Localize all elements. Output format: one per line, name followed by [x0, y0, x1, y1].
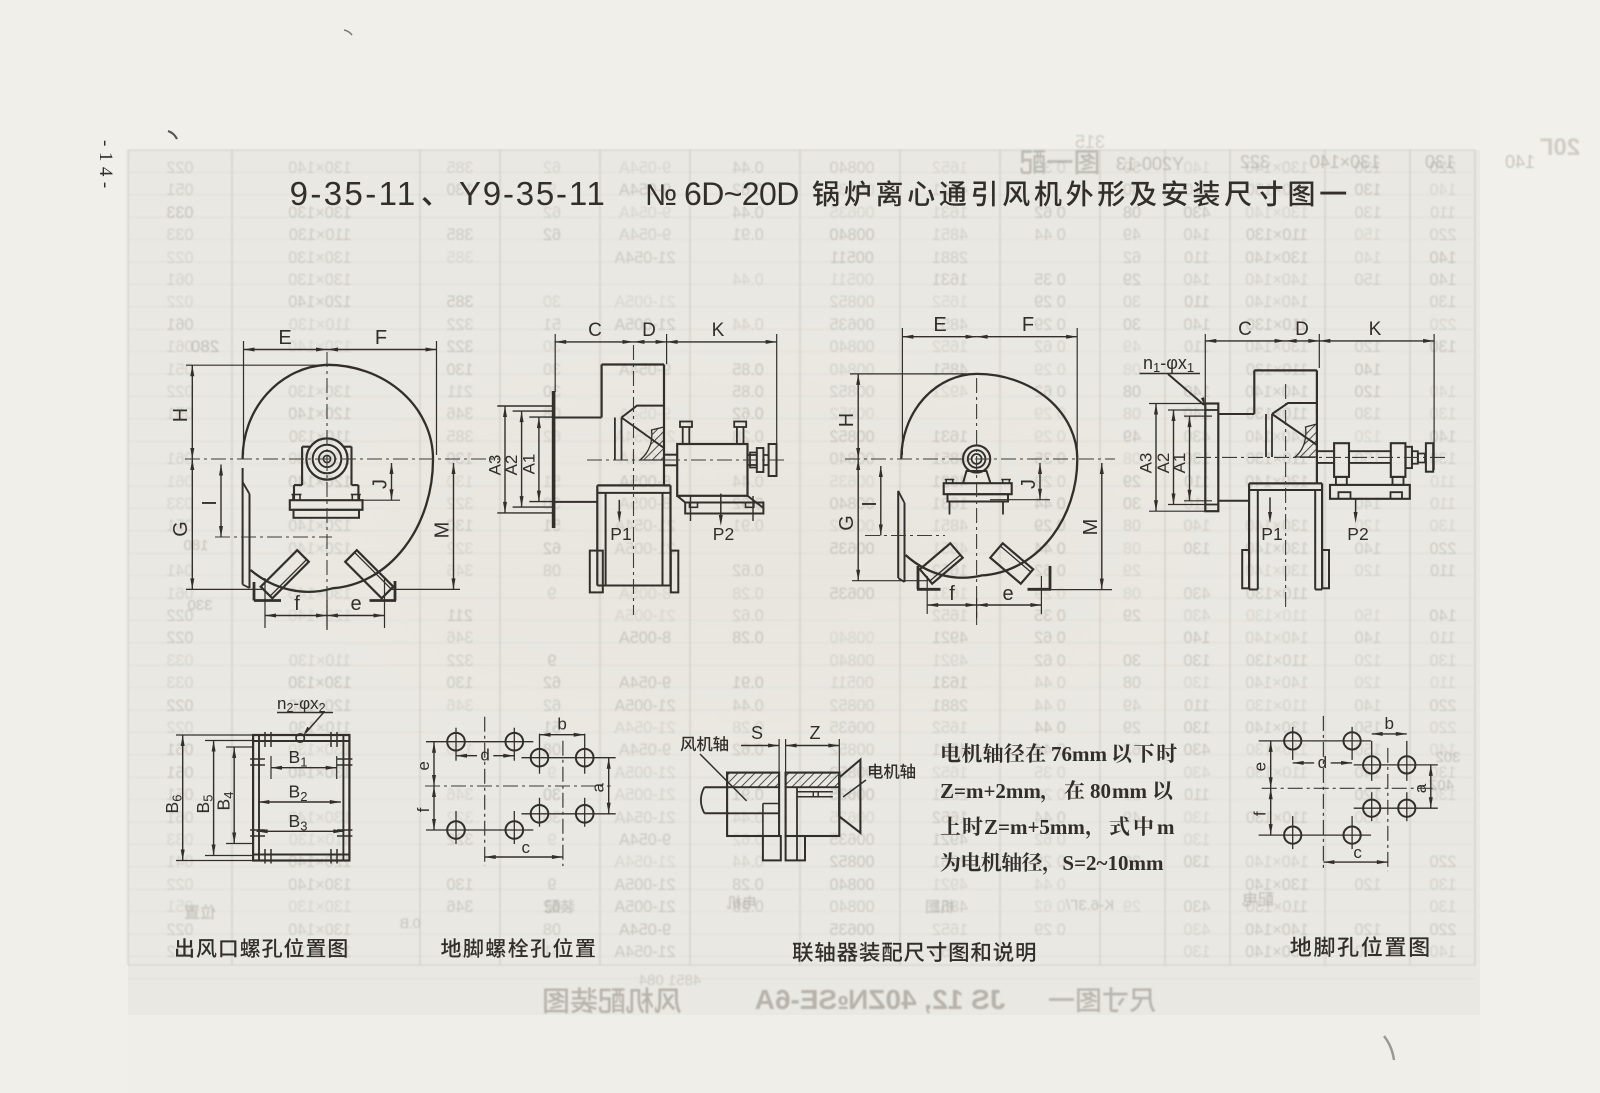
svg-text:130: 130: [1429, 876, 1456, 894]
svg-text:0 62: 0 62: [1034, 652, 1066, 670]
svg-text:110: 110: [1430, 473, 1456, 491]
svg-text:0 29: 0 29: [1034, 517, 1066, 535]
svg-text:140: 140: [1429, 607, 1456, 625]
svg-text:B2: B2: [289, 782, 308, 805]
svg-text:K: K: [1369, 319, 1382, 340]
svg-text:4921: 4921: [932, 652, 968, 670]
svg-text:f: f: [1251, 811, 1270, 816]
svg-text:S=2~10mm: S=2~10mm: [1062, 851, 1164, 875]
svg-text:e: e: [414, 761, 433, 770]
svg-text:120×140: 120×140: [288, 405, 351, 423]
svg-text:140: 140: [1183, 517, 1210, 535]
svg-text:S: S: [751, 723, 763, 743]
svg-text:110: 110: [1184, 697, 1210, 715]
svg-text:08: 08: [1123, 405, 1141, 423]
svg-text:00840: 00840: [829, 226, 874, 244]
svg-text:130: 130: [1183, 853, 1210, 871]
svg-text:140×140: 140×140: [1245, 674, 1308, 692]
svg-text:08: 08: [1123, 585, 1141, 603]
svg-text:30: 30: [543, 809, 561, 827]
svg-text:00635: 00635: [829, 585, 874, 603]
svg-text:033: 033: [166, 674, 193, 692]
svg-text:110: 110: [1184, 293, 1210, 311]
svg-text:E: E: [933, 314, 946, 336]
svg-text:430: 430: [1183, 764, 1210, 782]
svg-text:0 62: 0 62: [1034, 629, 1066, 647]
svg-text:I: I: [859, 501, 881, 507]
svg-text:08: 08: [543, 562, 561, 580]
svg-text:220: 220: [1429, 540, 1456, 558]
svg-text:120×140: 120×140: [288, 517, 351, 535]
svg-text:022: 022: [166, 159, 193, 177]
svg-text:130: 130: [1354, 204, 1381, 222]
svg-text:220: 220: [1429, 853, 1456, 871]
svg-text:0.44: 0.44: [732, 853, 764, 871]
svg-text:033: 033: [166, 204, 193, 222]
svg-text:022: 022: [166, 697, 193, 715]
svg-text:00635: 00635: [829, 473, 874, 491]
svg-text:P2: P2: [1347, 524, 1368, 544]
svg-text:29: 29: [1123, 473, 1141, 491]
svg-text:1652: 1652: [932, 719, 968, 737]
svg-text:4921: 4921: [932, 876, 968, 894]
svg-text:1652: 1652: [932, 607, 968, 625]
svg-text:b: b: [557, 715, 566, 734]
svg-text:08: 08: [1123, 361, 1141, 379]
svg-text:J: J: [1018, 479, 1040, 489]
svg-text:9: 9: [547, 652, 556, 670]
svg-text:1652: 1652: [932, 293, 968, 311]
svg-text:B4: B4: [214, 792, 237, 811]
svg-text:49: 49: [1123, 338, 1141, 356]
svg-text:150: 150: [1354, 226, 1381, 244]
svg-text:322: 322: [1240, 152, 1270, 172]
svg-text:211: 211: [447, 607, 473, 625]
svg-text:62: 62: [543, 697, 561, 715]
svg-text:120×140: 120×140: [288, 540, 351, 558]
svg-text:220: 220: [1429, 316, 1456, 334]
svg-text:9-054A: 9-054A: [619, 226, 671, 244]
svg-text:40Z: 40Z: [1428, 777, 1454, 794]
svg-text:00635: 00635: [829, 921, 874, 939]
svg-text:430: 430: [1183, 607, 1210, 625]
svg-text:00635: 00635: [829, 316, 874, 334]
svg-text:a: a: [1411, 783, 1430, 793]
svg-text:B6: B6: [162, 795, 185, 814]
svg-text:80: 80: [1090, 779, 1111, 803]
svg-text:140: 140: [1354, 249, 1381, 267]
svg-text:130: 130: [1183, 831, 1210, 849]
svg-text:00840: 00840: [829, 338, 874, 356]
svg-text:022: 022: [166, 629, 193, 647]
svg-text:0 62: 0 62: [1034, 338, 1066, 356]
svg-text:0 62: 0 62: [1034, 204, 1066, 222]
svg-text:322: 322: [446, 652, 473, 670]
svg-text:110×130: 110×130: [1246, 652, 1308, 670]
svg-text:21-005A: 21-005A: [614, 876, 675, 894]
svg-text:00635: 00635: [829, 204, 874, 222]
svg-text:30: 30: [1123, 495, 1141, 513]
svg-text:00852: 00852: [829, 853, 874, 871]
svg-text:140: 140: [1354, 697, 1381, 715]
svg-text:P2: P2: [713, 524, 734, 544]
svg-text:00511: 00511: [830, 249, 874, 267]
svg-text:051: 051: [166, 181, 193, 199]
svg-text:9: 9: [547, 585, 556, 603]
svg-text:9: 9: [547, 831, 556, 849]
svg-text:F: F: [375, 327, 387, 349]
svg-text:110: 110: [1430, 204, 1456, 222]
svg-text:220: 220: [1429, 921, 1456, 939]
svg-text:140×140: 140×140: [1245, 428, 1308, 446]
svg-text:140: 140: [1429, 943, 1456, 961]
svg-text:0 44: 0 44: [1034, 226, 1066, 244]
svg-text:Z: Z: [810, 723, 821, 743]
svg-text:0.91: 0.91: [732, 226, 764, 244]
svg-text:430: 430: [1183, 921, 1210, 939]
svg-text:061: 061: [166, 338, 193, 356]
svg-text:1631: 1631: [932, 204, 968, 222]
svg-text:0 44: 0 44: [1034, 540, 1066, 558]
svg-text:K-6.3Г/: K-6.3Г/: [1065, 897, 1114, 914]
svg-text:08: 08: [1123, 674, 1141, 692]
svg-text:00840: 00840: [829, 652, 874, 670]
svg-text:110×130: 110×130: [289, 831, 351, 849]
svg-text:346: 346: [446, 786, 473, 804]
svg-text:00852: 00852: [829, 293, 874, 311]
svg-text:00635: 00635: [829, 831, 874, 849]
svg-text:0.44: 0.44: [732, 271, 764, 289]
svg-text:302: 302: [1435, 749, 1460, 766]
svg-text:29: 29: [1123, 271, 1141, 289]
svg-text:F: F: [1022, 314, 1034, 336]
svg-text:110: 110: [1184, 249, 1210, 267]
svg-text:180: 180: [183, 537, 208, 554]
svg-text:130×140: 130×140: [1245, 562, 1308, 580]
svg-text:130: 130: [1183, 943, 1210, 961]
svg-text:130×130: 130×130: [288, 898, 351, 916]
svg-text:d: d: [1318, 753, 1327, 772]
svg-text:21-005A: 21-005A: [614, 607, 675, 625]
svg-text:Z=m+5mm: Z=m+5mm: [984, 815, 1085, 839]
svg-text:20Г: 20Г: [1539, 134, 1580, 161]
svg-text:022: 022: [166, 876, 193, 894]
svg-text:0 29: 0 29: [1034, 293, 1066, 311]
svg-text:0 29: 0 29: [1034, 316, 1066, 334]
svg-text:130×140: 130×140: [1245, 473, 1308, 491]
svg-text:110×130: 110×130: [1246, 697, 1308, 715]
svg-text:110: 110: [1430, 629, 1456, 647]
svg-text:130: 130: [1183, 674, 1210, 692]
svg-text:21-054A: 21-054A: [614, 943, 675, 961]
svg-text:21-054A: 21-054A: [614, 809, 675, 827]
svg-text:130: 130: [1183, 809, 1210, 827]
svg-text:0.91: 0.91: [732, 786, 764, 804]
svg-text:№: №: [645, 179, 677, 212]
svg-text:00511: 00511: [830, 271, 874, 289]
svg-text:120: 120: [1354, 876, 1381, 894]
svg-text:130: 130: [1183, 719, 1210, 737]
svg-text:G: G: [170, 521, 192, 537]
svg-text:0.44: 0.44: [732, 697, 764, 715]
svg-text:0.62: 0.62: [732, 831, 764, 849]
svg-text:4921: 4921: [932, 629, 968, 647]
svg-text:76mm: 76mm: [1051, 742, 1107, 766]
svg-text:P1: P1: [610, 524, 631, 544]
svg-text:1652: 1652: [932, 159, 968, 177]
svg-text:Y9-35-11: Y9-35-11: [459, 175, 607, 212]
svg-text:033: 033: [166, 831, 193, 849]
svg-text:21-054A: 21-054A: [614, 853, 675, 871]
svg-text:430: 430: [1183, 204, 1210, 222]
svg-text:0.62: 0.62: [732, 607, 764, 625]
svg-text:130×140: 130×140: [1245, 876, 1308, 894]
svg-text:315: 315: [1075, 132, 1105, 152]
svg-text:8-005A: 8-005A: [619, 629, 671, 647]
svg-text:c: c: [1353, 843, 1362, 862]
svg-text:322: 322: [446, 540, 473, 558]
svg-text:M: M: [432, 522, 454, 539]
svg-text:f: f: [949, 583, 955, 605]
svg-text:29: 29: [1123, 719, 1141, 737]
svg-text:150: 150: [1354, 809, 1381, 827]
svg-text:21-005A: 21-005A: [614, 764, 675, 782]
svg-text:2881: 2881: [932, 697, 968, 715]
svg-text:9-054A: 9-054A: [619, 741, 671, 759]
svg-text:0.28: 0.28: [732, 876, 764, 894]
svg-text:120: 120: [1354, 428, 1381, 446]
svg-text:c: c: [522, 838, 531, 857]
svg-text:08: 08: [543, 921, 561, 939]
svg-text:0.28: 0.28: [732, 898, 764, 916]
svg-text:A1: A1: [1170, 453, 1189, 474]
svg-text:30: 30: [1123, 316, 1141, 334]
svg-text:033: 033: [166, 226, 193, 244]
svg-text:b: b: [1384, 714, 1393, 733]
svg-text:211: 211: [447, 383, 473, 401]
svg-text:022: 022: [166, 921, 193, 939]
svg-text:140: 140: [1429, 271, 1456, 289]
svg-text:D: D: [1295, 319, 1309, 340]
svg-text:140: 140: [1183, 629, 1210, 647]
svg-text:J: J: [370, 479, 392, 489]
svg-text:29: 29: [1123, 562, 1141, 580]
svg-text:29: 29: [1123, 607, 1141, 625]
svg-text:140: 140: [1354, 495, 1381, 513]
svg-text:130×140: 130×140: [288, 921, 351, 939]
svg-text:130: 130: [446, 674, 473, 692]
svg-text:120×140: 120×140: [288, 853, 351, 871]
svg-text:00852: 00852: [829, 697, 874, 715]
svg-text:9-054A: 9-054A: [619, 674, 671, 692]
svg-text:130: 130: [1183, 652, 1210, 670]
svg-text:346: 346: [446, 697, 473, 715]
svg-text:140: 140: [1429, 181, 1456, 199]
svg-text:346: 346: [446, 562, 473, 580]
svg-text:150: 150: [1354, 271, 1381, 289]
svg-text:041: 041: [166, 853, 193, 871]
svg-text:110×130: 110×130: [289, 652, 351, 670]
svg-text:0 62: 0 62: [1034, 898, 1066, 916]
svg-text:322: 322: [446, 338, 473, 356]
svg-text:041: 041: [166, 562, 193, 580]
svg-text:0.85: 0.85: [732, 361, 764, 379]
svg-text:00852: 00852: [829, 741, 874, 759]
svg-text:08: 08: [543, 741, 561, 759]
svg-text:385: 385: [446, 226, 473, 244]
svg-text:150: 150: [1354, 450, 1381, 468]
svg-text:130×130: 130×130: [288, 674, 351, 692]
svg-text:0.62: 0.62: [732, 562, 764, 580]
svg-text:00635: 00635: [829, 540, 874, 558]
svg-text:n1-φx1: n1-φx1: [1143, 353, 1194, 375]
svg-text:110×130: 110×130: [289, 226, 351, 244]
svg-text:130: 130: [1354, 405, 1381, 423]
svg-text:130: 130: [1429, 293, 1456, 311]
svg-text:140: 140: [1429, 249, 1456, 267]
svg-text:D: D: [642, 320, 656, 341]
svg-text:130×130: 130×130: [288, 383, 351, 401]
svg-text:130: 130: [1429, 517, 1456, 535]
svg-text:140: 140: [1183, 226, 1210, 244]
svg-text:130: 130: [446, 876, 473, 894]
svg-text:220: 220: [1429, 719, 1456, 737]
svg-text:385: 385: [446, 293, 473, 311]
svg-text:0 44: 0 44: [1034, 719, 1066, 737]
svg-text:I: I: [199, 500, 221, 506]
svg-text:0.44: 0.44: [732, 316, 764, 334]
svg-text:21-005A: 21-005A: [614, 898, 675, 916]
svg-text:30: 30: [543, 338, 561, 356]
svg-text:061: 061: [166, 316, 193, 334]
svg-text:6D~20D: 6D~20D: [684, 176, 799, 212]
svg-text:120×140: 120×140: [288, 473, 351, 491]
svg-text:130: 130: [1429, 652, 1456, 670]
svg-text:E: E: [278, 327, 291, 349]
svg-text:130: 130: [1354, 181, 1381, 199]
svg-text:P1: P1: [1261, 524, 1282, 544]
svg-text:022: 022: [166, 293, 193, 311]
svg-text:21-005A: 21-005A: [614, 293, 675, 311]
svg-text:62: 62: [543, 226, 561, 244]
svg-text:Z=m+2mm: Z=m+2mm: [940, 779, 1041, 803]
svg-text:21-054A: 21-054A: [614, 428, 675, 446]
svg-text:9-054A: 9-054A: [619, 159, 671, 177]
svg-text:140×140: 140×140: [1245, 293, 1308, 311]
svg-text:62: 62: [1123, 249, 1141, 267]
svg-text:30: 30: [543, 786, 561, 804]
svg-text:140: 140: [1183, 316, 1210, 334]
svg-text:033: 033: [166, 495, 193, 513]
svg-text:49: 49: [1123, 226, 1141, 244]
svg-text:130×140: 130×140: [1245, 249, 1308, 267]
svg-text:00840: 00840: [829, 629, 874, 647]
svg-text:0 29: 0 29: [1034, 921, 1066, 939]
svg-text:21-054A: 21-054A: [614, 719, 675, 737]
svg-text:130×130: 130×130: [288, 249, 351, 267]
svg-text:9: 9: [547, 876, 556, 894]
svg-text:385: 385: [446, 249, 473, 267]
svg-text:00840: 00840: [829, 361, 874, 379]
svg-text:00852: 00852: [829, 428, 874, 446]
svg-text:e: e: [1251, 762, 1270, 771]
svg-text:120: 120: [1354, 921, 1381, 939]
svg-text:130×130: 130×130: [288, 271, 351, 289]
svg-text:0.B: 0.B: [399, 915, 420, 931]
svg-text:1631: 1631: [932, 271, 968, 289]
svg-text:130: 130: [1183, 540, 1210, 558]
svg-text:120×140: 120×140: [288, 338, 351, 356]
svg-text:4851: 4851: [932, 226, 968, 244]
svg-text:H: H: [170, 408, 192, 422]
svg-text:150: 150: [1354, 607, 1381, 625]
svg-text:110: 110: [1430, 562, 1456, 580]
svg-text:0.28: 0.28: [732, 585, 764, 603]
svg-text:220: 220: [1429, 226, 1456, 244]
svg-text:30: 30: [543, 361, 561, 379]
svg-text:110×130: 110×130: [289, 316, 351, 334]
svg-text:62: 62: [543, 674, 561, 692]
svg-text:0 29: 0 29: [1034, 428, 1066, 446]
svg-text:m: m: [1157, 815, 1175, 839]
svg-text:140: 140: [1183, 405, 1210, 423]
svg-text:0.28: 0.28: [732, 629, 764, 647]
svg-text:M: M: [1080, 519, 1102, 536]
svg-text:00840: 00840: [829, 159, 874, 177]
svg-text:0.62: 0.62: [732, 741, 764, 759]
svg-text:0.91: 0.91: [732, 674, 764, 692]
svg-text:130: 130: [1425, 152, 1455, 172]
svg-text:21-005A: 21-005A: [614, 786, 675, 804]
svg-text:140: 140: [1505, 152, 1535, 172]
svg-text:29: 29: [1123, 898, 1141, 916]
svg-text:0 44: 0 44: [1034, 697, 1066, 715]
svg-text:08: 08: [1123, 383, 1141, 401]
svg-text:110×130: 110×130: [1246, 226, 1308, 244]
svg-text:00635: 00635: [829, 719, 874, 737]
svg-text:00852: 00852: [829, 383, 874, 401]
svg-text:62: 62: [543, 540, 561, 558]
svg-text:51: 51: [543, 943, 561, 961]
svg-text:120: 120: [1354, 674, 1381, 692]
svg-text:346: 346: [446, 405, 473, 423]
svg-text:140: 140: [1183, 271, 1210, 289]
svg-text:022: 022: [166, 719, 193, 737]
svg-text:130×140: 130×140: [1310, 152, 1381, 172]
svg-text:0.85: 0.85: [732, 383, 764, 401]
svg-text:140: 140: [1354, 629, 1381, 647]
svg-text:346: 346: [446, 898, 473, 916]
svg-text:08: 08: [1123, 517, 1141, 535]
svg-text:110×130: 110×130: [1246, 607, 1308, 625]
svg-text:1652: 1652: [932, 338, 968, 356]
svg-text:430: 430: [1183, 898, 1210, 916]
svg-text:H: H: [836, 413, 858, 427]
svg-text:49: 49: [1123, 428, 1141, 446]
svg-text:C: C: [588, 320, 602, 341]
svg-text:1631: 1631: [932, 674, 968, 692]
svg-text:00635: 00635: [829, 809, 874, 827]
svg-text:00840: 00840: [829, 876, 874, 894]
svg-text:140×140: 140×140: [1245, 921, 1308, 939]
svg-text:-14-: -14-: [95, 140, 116, 194]
svg-text:B5: B5: [193, 795, 216, 814]
svg-text:110×130: 110×130: [1246, 585, 1308, 603]
svg-text:f: f: [414, 807, 433, 812]
svg-text:110: 110: [1430, 674, 1456, 692]
svg-text:e: e: [1002, 583, 1013, 605]
svg-text:130: 130: [446, 361, 473, 379]
